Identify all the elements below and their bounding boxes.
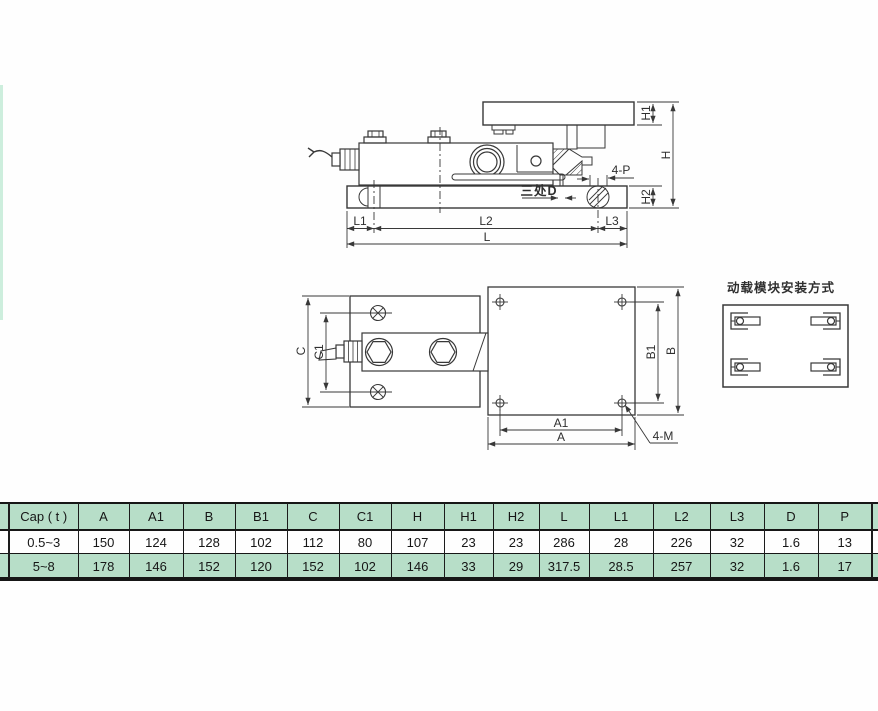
bolt-1 [364, 131, 386, 143]
table-header-cell: A [78, 503, 129, 530]
table-header-cell: L [539, 503, 589, 530]
table-header-row: Cap ( t ) A A1 B B1 C C1 H H1 H2 L L1 L2… [9, 503, 872, 530]
bolt-2 [428, 131, 450, 143]
pin-bracket [553, 149, 592, 175]
hexbolt-top-2 [430, 339, 457, 366]
table-header-cell: H1 [444, 503, 493, 530]
table-cell: 317.5 [539, 554, 589, 578]
table-header-cell: B [183, 503, 235, 530]
dim-label-three-places-d: 三处D [520, 183, 557, 198]
table-cell: 80 [339, 530, 391, 554]
table-header-cell: C [287, 503, 339, 530]
table-row: 0.5~3 150 124 128 102 112 80 107 23 23 2… [9, 530, 872, 554]
table-cell: 13 [818, 530, 872, 554]
install-diagram-title: 动载模块安装方式 [727, 280, 835, 295]
dim-label-c1: C1 [312, 344, 326, 360]
hexbolt-top-1 [366, 339, 393, 366]
table-cell: 28.5 [589, 554, 653, 578]
table-header-cell: D [764, 503, 818, 530]
dim-label-l1: L1 [353, 214, 367, 228]
table-cell: 29 [493, 554, 539, 578]
table-cell: 32 [710, 554, 764, 578]
table-header-cell: H2 [493, 503, 539, 530]
table-cell: 152 [183, 554, 235, 578]
dim-label-h1: H1 [639, 105, 653, 121]
table-header-cell: L2 [653, 503, 710, 530]
cable-gland-side [308, 148, 359, 170]
table-cell: 1.6 [764, 554, 818, 578]
table-cell: 257 [653, 554, 710, 578]
table-cell: 102 [339, 554, 391, 578]
dim-label-a1: A1 [554, 416, 569, 430]
table-cell: 152 [287, 554, 339, 578]
table-cell: 146 [391, 554, 444, 578]
table-cell: 5~8 [9, 554, 78, 578]
top-view-drawing: C C1 B1 B A1 A 4-M [294, 287, 684, 450]
dim-label-4m: 4-M [653, 429, 674, 443]
table-row: 5~8 178 146 152 120 152 102 146 33 29 31… [9, 554, 872, 578]
table-cell: 0.5~3 [9, 530, 78, 554]
dim-label-4p: 4-P [612, 163, 631, 177]
table-cell: 286 [539, 530, 589, 554]
dim-label-l3: L3 [605, 214, 619, 228]
table-header-cell: P [818, 503, 872, 530]
technical-drawing: H1 H H2 4-P 三处D L1 L2 L3 L [0, 0, 878, 500]
table-cell: 32 [710, 530, 764, 554]
dim-label-l: L [484, 230, 491, 244]
table-cell: 150 [78, 530, 129, 554]
table-header-cell: Cap ( t ) [9, 503, 78, 530]
side-view-drawing: H1 H H2 4-P 三处D L1 L2 L3 L [308, 102, 679, 248]
table-cell: 128 [183, 530, 235, 554]
table-header-cell: H [391, 503, 444, 530]
table-header-cell: L1 [589, 503, 653, 530]
table-cell: 124 [129, 530, 183, 554]
table-cell: 178 [78, 554, 129, 578]
dim-label-c: C [294, 346, 308, 355]
table-cell: 120 [235, 554, 287, 578]
table-cell: 33 [444, 554, 493, 578]
install-diagram: 动载模块安装方式 [723, 280, 848, 387]
spec-table: Cap ( t ) A A1 B B1 C C1 H H1 H2 L L1 L2… [8, 503, 873, 578]
dim-label-b1: B1 [644, 344, 658, 359]
table-cell: 146 [129, 554, 183, 578]
dim-label-h: H [659, 151, 673, 160]
table-cell: 28 [589, 530, 653, 554]
table-header-cell: A1 [129, 503, 183, 530]
table-header-cell: B1 [235, 503, 287, 530]
table-header-cell: C1 [339, 503, 391, 530]
table-cell: 226 [653, 530, 710, 554]
table-cell: 23 [444, 530, 493, 554]
page: H1 H H2 4-P 三处D L1 L2 L3 L [0, 0, 878, 711]
dim-label-b: B [664, 347, 678, 355]
table-cell: 17 [818, 554, 872, 578]
table-header-cell: L3 [710, 503, 764, 530]
table-cell: 23 [493, 530, 539, 554]
table-cell: 102 [235, 530, 287, 554]
dim-label-l2: L2 [479, 214, 493, 228]
table-cell: 1.6 [764, 530, 818, 554]
table-cell: 112 [287, 530, 339, 554]
dim-label-h2: H2 [639, 189, 653, 205]
dim-label-a: A [557, 430, 565, 444]
table-cell: 107 [391, 530, 444, 554]
